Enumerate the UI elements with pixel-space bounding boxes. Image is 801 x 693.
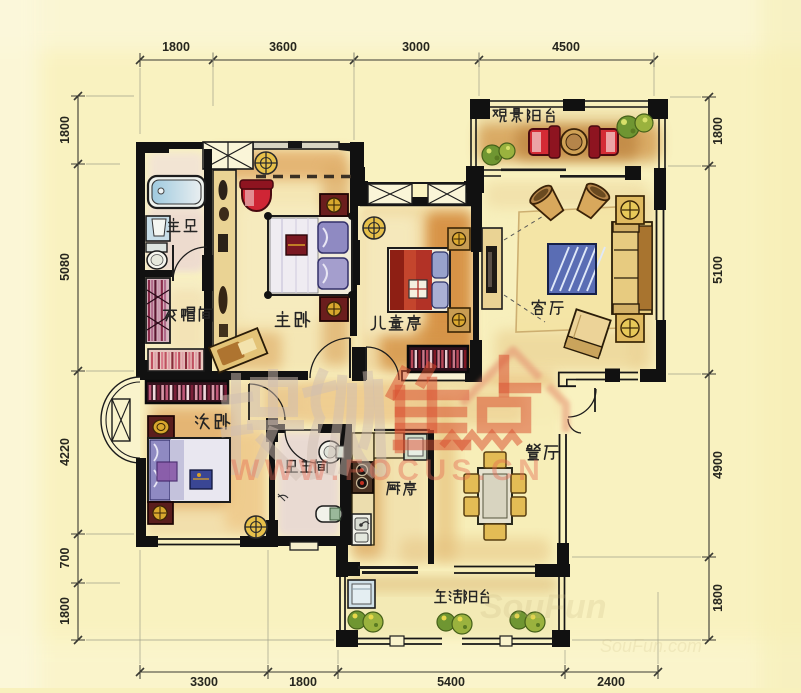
svg-text:4220: 4220	[58, 438, 72, 466]
svg-text:1800: 1800	[162, 40, 190, 54]
svg-text:3600: 3600	[269, 40, 297, 54]
svg-text:SouFun: SouFun	[480, 588, 607, 626]
svg-text:1800: 1800	[58, 597, 72, 625]
svg-text:4900: 4900	[711, 451, 725, 479]
svg-text:5100: 5100	[711, 256, 725, 284]
svg-text:WWW.FOCUS.CN: WWW.FOCUS.CN	[231, 454, 545, 487]
svg-text:5400: 5400	[437, 675, 465, 688]
svg-text:5080: 5080	[58, 253, 72, 281]
svg-text:1800: 1800	[58, 116, 72, 144]
svg-text:4500: 4500	[552, 40, 580, 54]
svg-text:3000: 3000	[402, 40, 430, 54]
svg-text:3300: 3300	[190, 675, 218, 688]
svg-text:1800: 1800	[289, 675, 317, 688]
svg-text:1800: 1800	[711, 117, 725, 145]
svg-text:1800: 1800	[711, 584, 725, 612]
svg-text:2400: 2400	[597, 675, 625, 688]
svg-text:700: 700	[58, 548, 72, 569]
svg-text:SouFun.com: SouFun.com	[600, 636, 702, 656]
